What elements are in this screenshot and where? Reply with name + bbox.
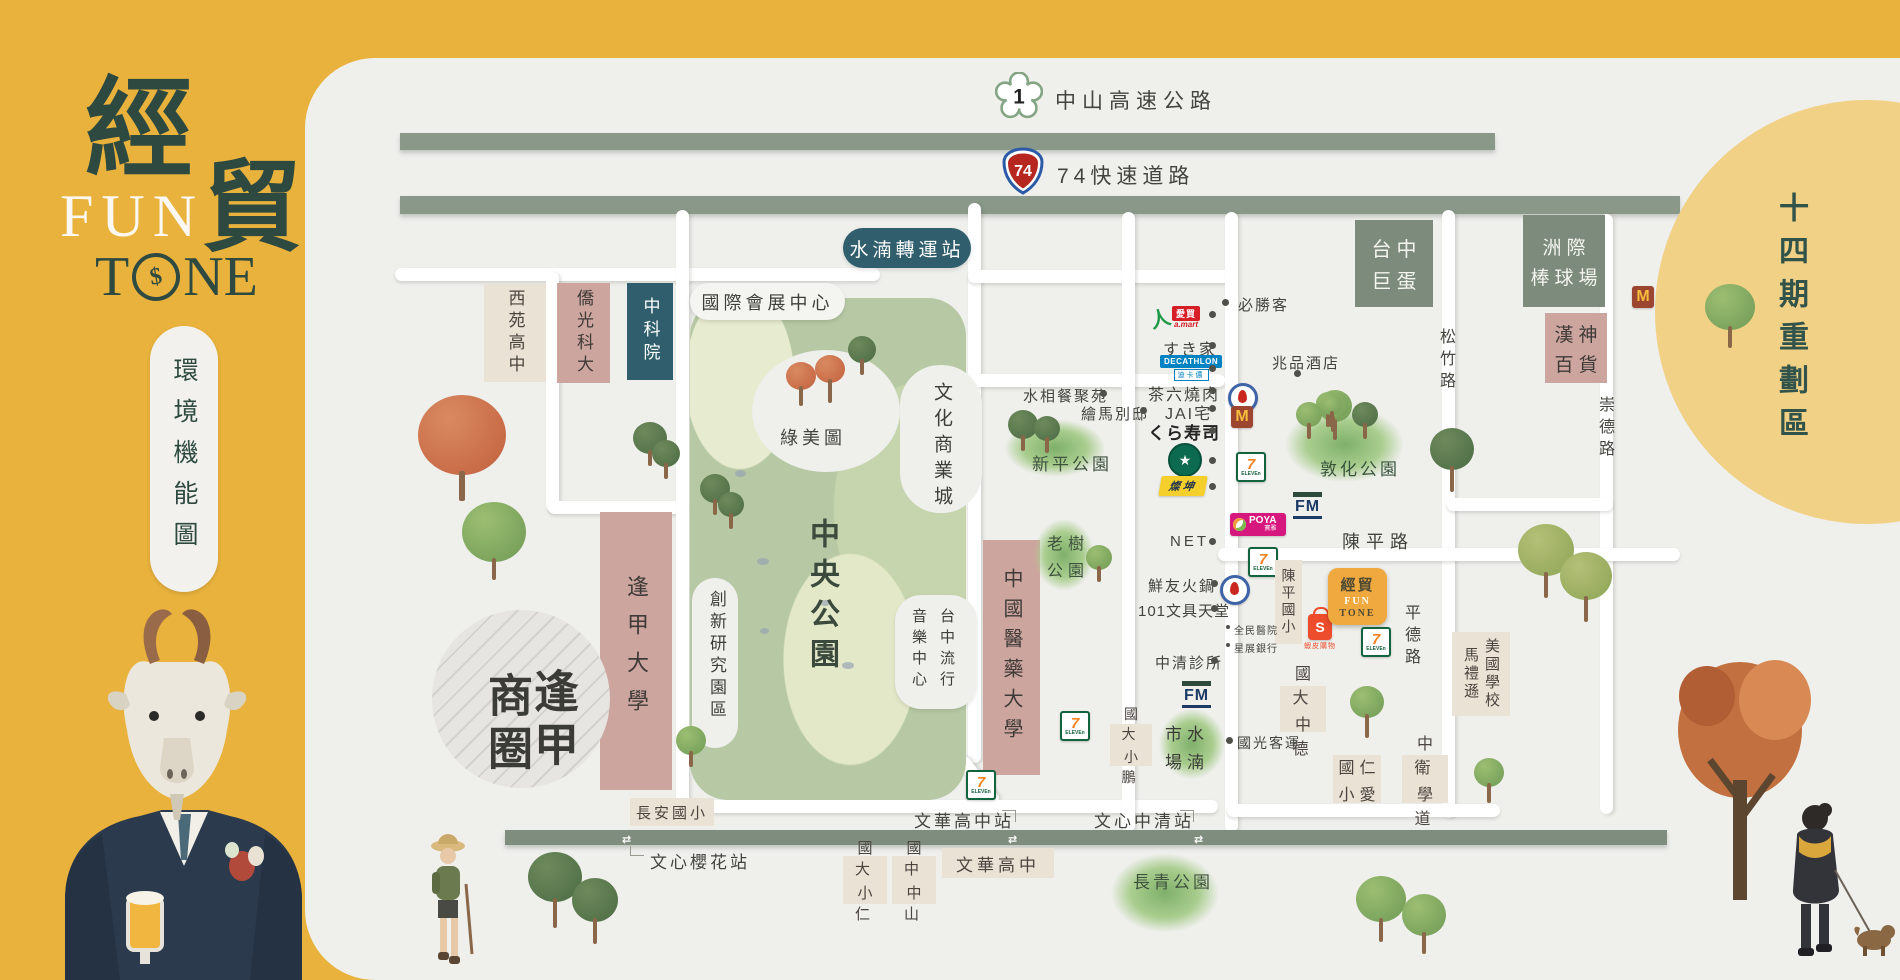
poi-dot [1209,457,1216,464]
poi-dot [1140,407,1147,414]
transfer-arrow-icon [1008,830,1017,848]
green-museum-label: 綠美圖 [780,424,846,450]
fengjia-biz-left: 商圈 [474,672,539,778]
changan-es-box: 長安國小 [630,798,714,826]
hospital-label: 全民醫院 [1234,622,1278,637]
tree-icon [1086,545,1112,582]
road-park-west [676,210,689,812]
chenping-road-label: 陳平路 [1342,528,1414,554]
road-dunhua-south [1447,498,1613,511]
wenhua-hs-box: 文華高中 [942,848,1054,878]
music-center-label-left: 音樂中心 [908,608,929,692]
shuinan-hub-pill: 水湳轉運站 [843,228,971,268]
tree-icon [418,395,506,501]
poi-dot [1209,427,1216,434]
tree-icon [1560,552,1612,622]
amart-icon: 人 愛買a.mart [1150,303,1200,332]
poi-dot [1100,390,1107,397]
dapeng-es-box: 國大小鵬 [1110,724,1152,766]
site-marker: 經貿 FUN TONE [1328,568,1387,625]
tree-icon [1430,428,1474,492]
poi-dot [1209,405,1216,412]
daren-es-box: 國大小仁 [843,856,887,904]
poi-dot [1211,605,1218,612]
tree-icon [676,726,706,767]
zhongqing-station-label: 文心中清站 [1094,807,1194,832]
logo-cn-jing: 經 [85,42,193,198]
seven-eleven-icon: 7ELEVEn [1248,547,1278,577]
poya-icon: POYA 寶雅 [1230,513,1286,536]
goat-mascot-illustration [10,598,340,980]
weidao-hs-box: 中衛學道 [1402,755,1448,803]
seven-eleven-icon: 7ELEVEn [1361,627,1391,657]
tree-icon [1322,396,1342,427]
zhongshan-jhs-box: 國中中山 [892,856,936,904]
tree-icon [1350,686,1384,738]
qiaoguang-univ-box: 僑光科大 [557,283,610,383]
poi-dot [1222,299,1229,306]
maison-hotel-label: 兆品酒店 [1272,352,1340,373]
poi-dot [1211,580,1218,587]
tree-icon [1356,876,1406,942]
station-bracket [1180,810,1194,822]
familymart-icon: FM [1182,681,1211,708]
ema-label: 繪馬別邸 [1081,403,1149,424]
tree-icon [652,440,680,479]
side-pill: 環境機能圖 [150,326,218,592]
renai-es-box: 國仁小愛 [1333,755,1381,803]
road-block-north [968,270,1232,283]
dunhua-park-label: 敦化公園 [1320,455,1400,480]
tree-icon [786,362,816,406]
tree-icon [1296,402,1322,439]
hiker-illustration [402,824,494,980]
station-bracket [1002,810,1016,822]
station-bracket [630,846,644,856]
intercontinental-stadium-box: 洲際棒球場 [1523,215,1605,307]
tree-icon [1402,894,1446,954]
tree-icon [1352,402,1378,439]
tree-icon [1705,284,1755,348]
dbs-label: 星展銀行 [1234,640,1278,655]
tree-icon [848,336,876,375]
expo-center-pill: 國際會展中心 [690,283,845,320]
familymart-icon: FM [1293,492,1322,519]
road-south-east [1227,804,1500,817]
poi-dot [1211,657,1218,664]
chongde-road-label: 崇德路 [1592,396,1616,462]
taichung-dome-box: 台中巨蛋 [1355,220,1433,307]
highway-1-name: 中山高速公路 [1055,85,1217,115]
xianyou-label: 鮮友火鍋 [1148,575,1216,596]
environment-map-poster: 十四期重劃區 1 中山高速公路 74 74快速道路 [0,0,1900,980]
poi-dot [1209,365,1216,372]
wenhua-station-label: 文華高中站 [914,807,1014,832]
ncsist-box: 中科院 [627,283,673,380]
pingde-road-label: 平德路 [1398,604,1422,670]
tree-icon [462,502,526,580]
seven-eleven-icon: 7ELEVEn [966,770,996,800]
xiyuan-hs-box: 西苑高中 [484,284,546,382]
fengjia-univ-box: 逢甲大學 [600,512,672,790]
yinghua-station-label: 文心櫻花站 [650,848,750,873]
laoshu-park-label: 老樹公園 [1042,530,1089,581]
highway-74-shield-icon: 74 [1002,147,1044,200]
changqing-park-blob [1090,838,1240,948]
chenping-es-box: 陳平國小 [1275,560,1302,644]
mcdonalds-icon: M [1231,406,1253,428]
music-center-label-right: 台中流行 [936,608,957,692]
tree-icon [572,878,618,944]
mcdonalds-icon: M [1632,286,1654,308]
starbucks-icon: ★ [1168,443,1202,477]
tsannkuen-icon: 燦坤 [1158,476,1208,496]
tree-icon [1034,416,1060,453]
highway-band-no1 [400,133,1495,150]
hanshin-dept-box: 漢神百貨 [1545,313,1607,383]
pizzahut-label: 必勝客 [1238,294,1289,315]
poi-dot [1294,370,1301,377]
road-songzhu [1442,210,1455,818]
xinping-park-label: 新平公園 [1032,450,1112,475]
poi-dot [1209,538,1216,545]
svg-text:1: 1 [1013,85,1025,108]
dade-jhs-box: 國大中德 [1280,686,1326,732]
changqing-park-label: 長青公園 [1133,868,1213,893]
walker-dog-illustration [1655,640,1900,980]
songzhu-road-label: 松竹路 [1433,328,1457,394]
tree-icon [718,492,744,529]
logo-en-fun: FUN [60,182,204,251]
tree-icon [815,355,845,403]
seven-eleven-icon: 7ELEVEn [1060,711,1090,741]
central-park-label: 中央公園 [799,518,843,678]
brt-band [505,830,1667,845]
highway-74-name: 74快速道路 [1057,160,1194,190]
tree-icon [1474,758,1504,803]
culture-city-label: 文化商業城 [928,382,955,512]
poi-dot [1209,387,1216,394]
poi-dot [1209,342,1216,349]
poi-dot [1209,483,1216,490]
svg-text:74: 74 [1014,163,1032,180]
coin-icon: $ [128,249,184,305]
innovation-label: 創新研究園區 [704,590,729,722]
shuinan-market-label: 市水場湳 [1160,720,1209,773]
transfer-arrow-icon [1194,830,1203,848]
poi-dot [1226,737,1233,744]
road-west-top [395,268,880,281]
net-label: NET [1170,533,1209,550]
highway-1-shield-icon: 1 [995,72,1043,125]
poi-dot [1209,311,1216,318]
logo-en-tone: T $ NE [95,245,258,309]
poi-dot [1226,643,1230,647]
zone-label: 十四期重劃區 [1768,192,1812,450]
seven-eleven-icon: 7ELEVEn [1236,452,1266,482]
poi-dot [1226,625,1230,629]
morrison-school-box: 馬禮遜 美國學校 [1452,632,1510,716]
